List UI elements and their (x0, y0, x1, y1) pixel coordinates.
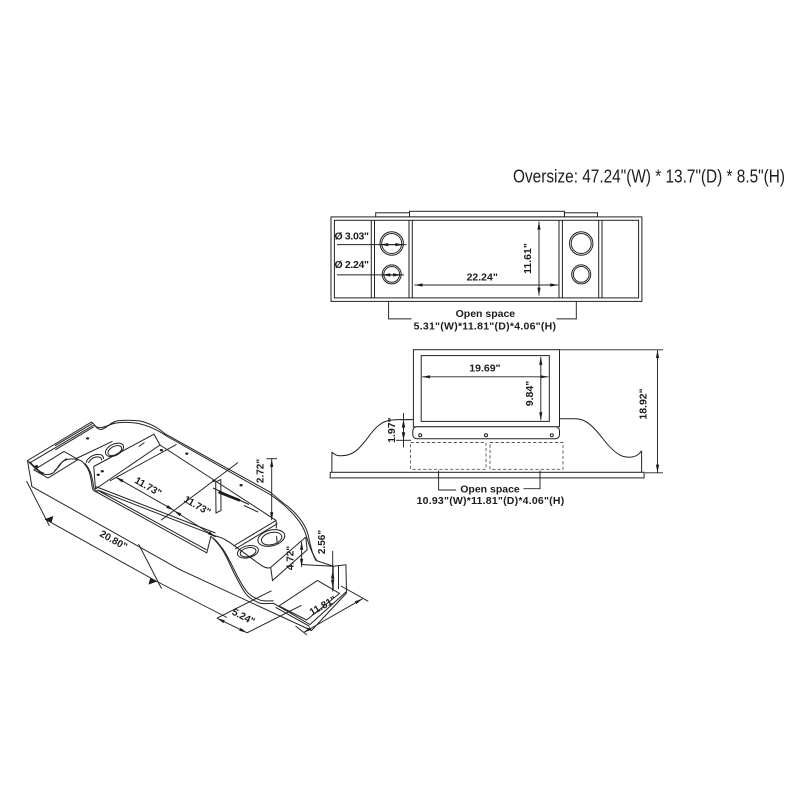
svg-text:19.69": 19.69" (469, 363, 500, 375)
svg-text:Ø 3.03": Ø 3.03" (335, 230, 370, 242)
svg-text:2.56": 2.56" (317, 530, 328, 554)
svg-text:5.31"(W)*11.81"(D)*4.06"(H): 5.31"(W)*11.81"(D)*4.06"(H) (414, 320, 556, 332)
svg-text:22.24": 22.24" (467, 272, 498, 284)
svg-text:10.93"(W)*11.81"(D)*4.06"(H): 10.93"(W)*11.81"(D)*4.06"(H) (417, 495, 565, 507)
svg-text:2.72": 2.72" (256, 459, 267, 483)
svg-text:Open space: Open space (456, 308, 516, 320)
svg-text:4.72": 4.72" (286, 546, 297, 570)
svg-text:Open space: Open space (460, 484, 520, 496)
svg-text:9.84": 9.84" (524, 381, 536, 406)
svg-text:18.92": 18.92" (637, 388, 649, 419)
svg-text:1.97": 1.97" (386, 417, 398, 442)
svg-text:11.61": 11.61" (522, 243, 534, 274)
svg-text:Oversize: 47.24"(W) * 13.7"(D): Oversize: 47.24"(W) * 13.7"(D) * 8.5"(H) (513, 166, 785, 187)
svg-text:Ø 2.24": Ø 2.24" (335, 259, 370, 271)
